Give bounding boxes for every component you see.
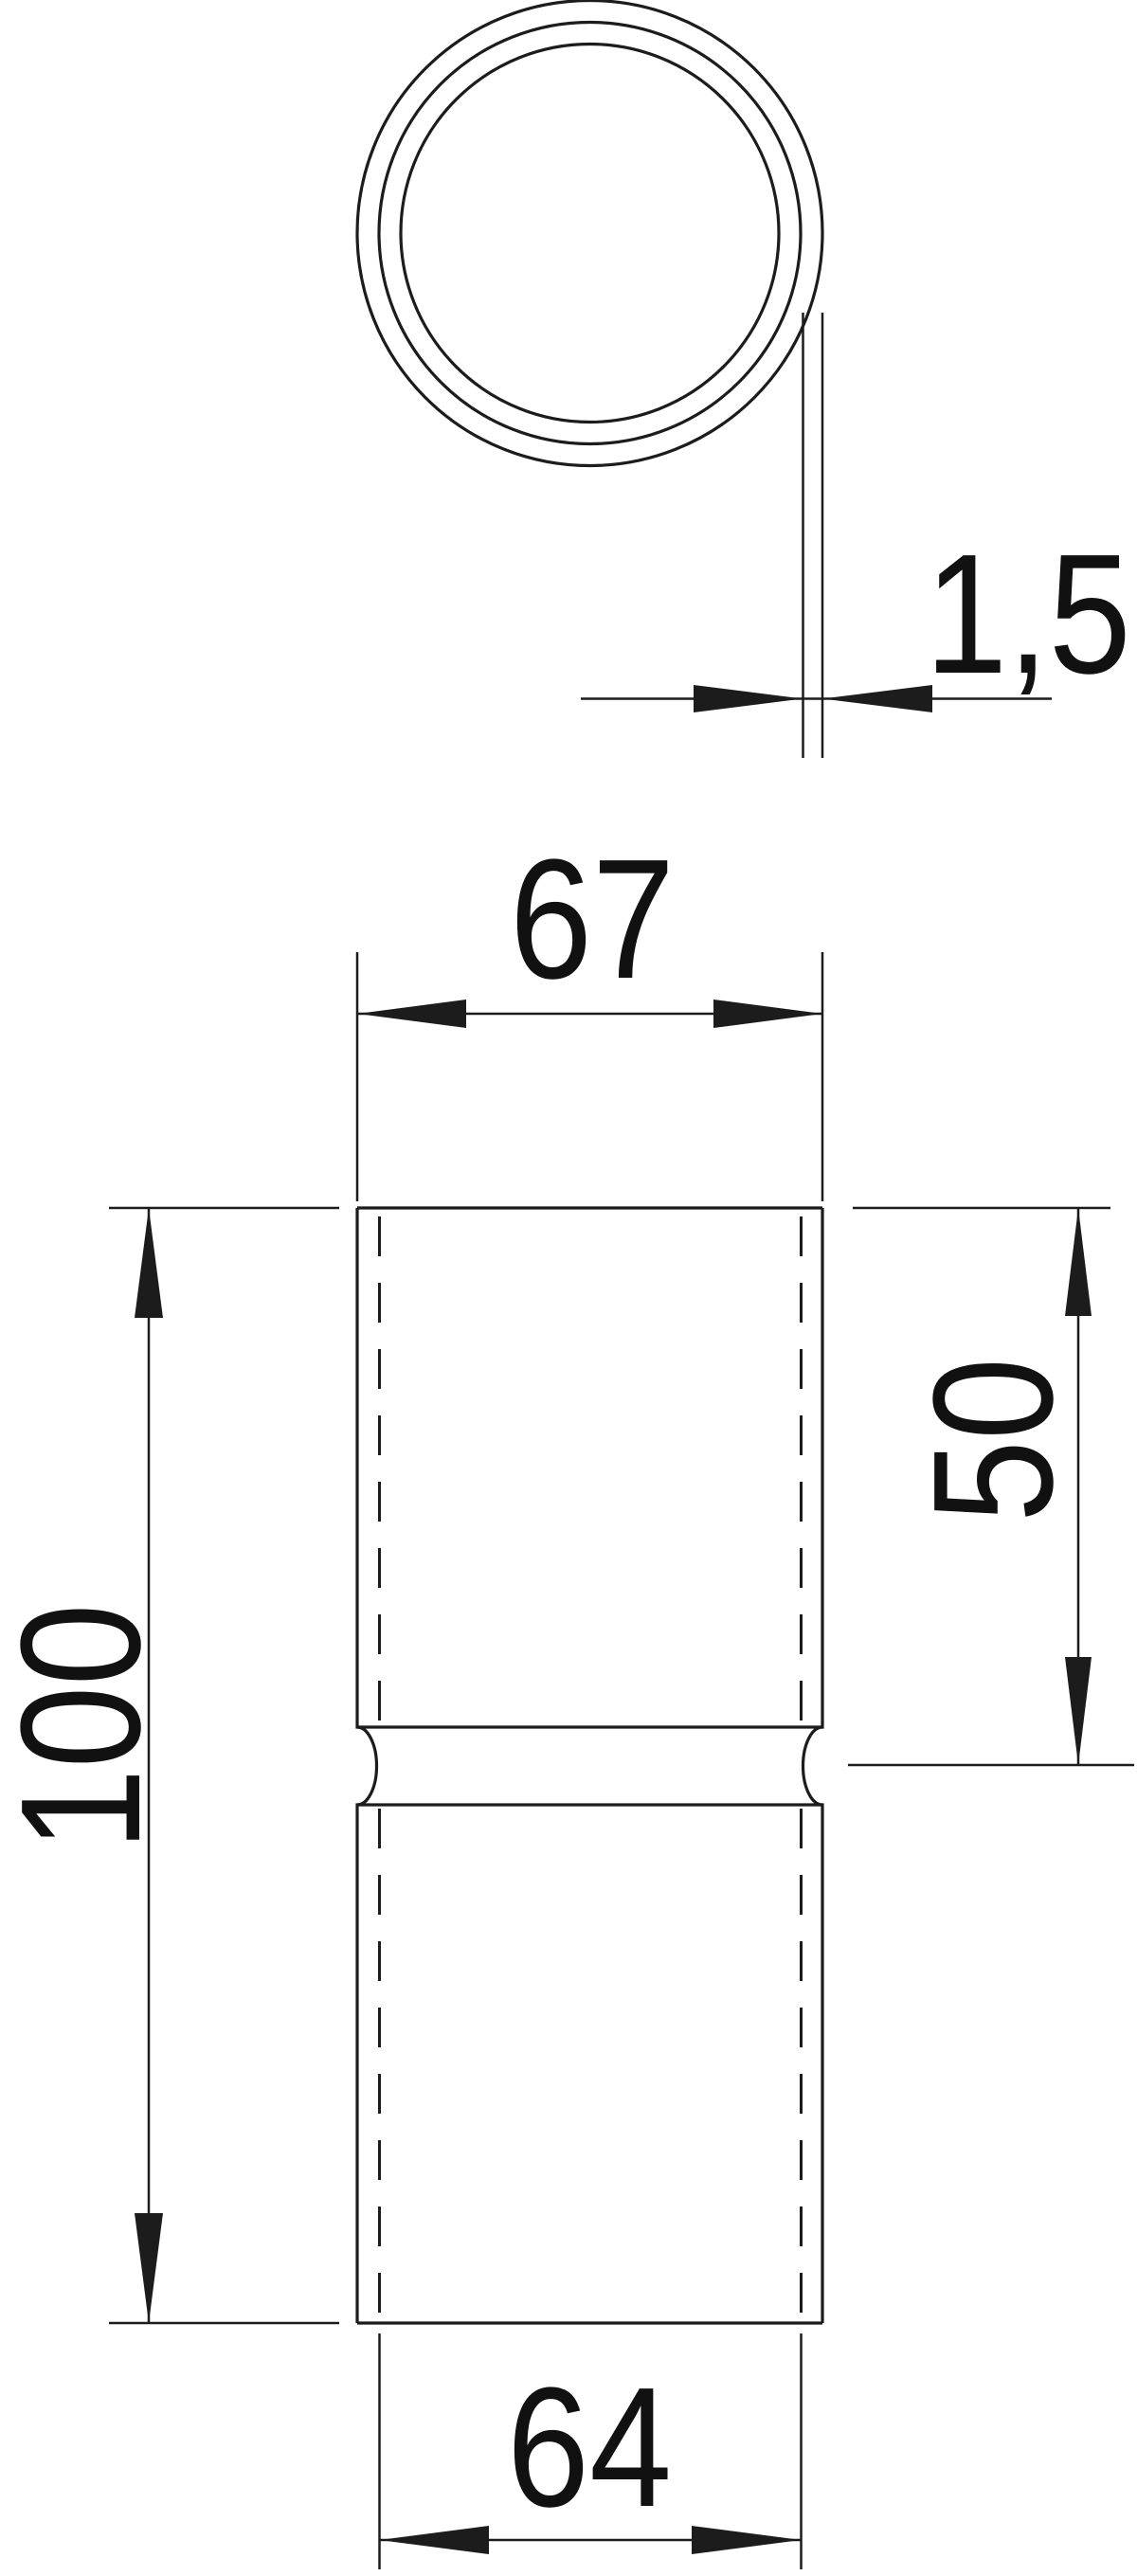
inner-arrowhead-right bbox=[692, 2526, 802, 2554]
body-right-edge bbox=[803, 1208, 822, 2323]
width-arrowhead-right bbox=[713, 1000, 822, 1028]
drawing-canvas: 1,5 67 bbox=[0, 0, 1137, 2576]
upper-section-dimension: 50 bbox=[848, 1208, 1134, 1765]
half-arrowhead-top bbox=[1065, 1208, 1092, 1316]
top-view bbox=[357, 1, 822, 466]
width-arrowhead-left bbox=[357, 1000, 466, 1028]
wall-arrowhead-left bbox=[694, 685, 803, 712]
outer-circle bbox=[357, 1, 822, 466]
inner-arrowhead-left bbox=[380, 2526, 490, 2554]
upper-section-label: 50 bbox=[897, 1358, 1089, 1522]
bottom-width-dimension: 64 bbox=[380, 2333, 802, 2569]
wall-thickness-dimension: 1,5 bbox=[581, 313, 1131, 758]
technical-drawing: 1,5 67 bbox=[0, 0, 1137, 2576]
front-view bbox=[357, 1208, 822, 2323]
overall-length-label: 100 bbox=[0, 1603, 175, 1850]
wall-thickness-label: 1,5 bbox=[925, 518, 1131, 710]
overall-length-dimension: 100 bbox=[0, 1208, 339, 2323]
half-arrowhead-bottom bbox=[1065, 1657, 1092, 1765]
inner-circle bbox=[401, 45, 779, 423]
length-arrowhead-top bbox=[135, 1208, 163, 1318]
body-left-edge bbox=[357, 1208, 377, 2323]
top-width-label: 67 bbox=[510, 823, 675, 1015]
bottom-width-label: 64 bbox=[507, 2351, 672, 2543]
wall-arrowhead-right bbox=[822, 685, 932, 712]
length-arrowhead-bottom bbox=[135, 2213, 163, 2323]
top-width-dimension: 67 bbox=[357, 823, 822, 1201]
middle-circle bbox=[379, 23, 801, 444]
